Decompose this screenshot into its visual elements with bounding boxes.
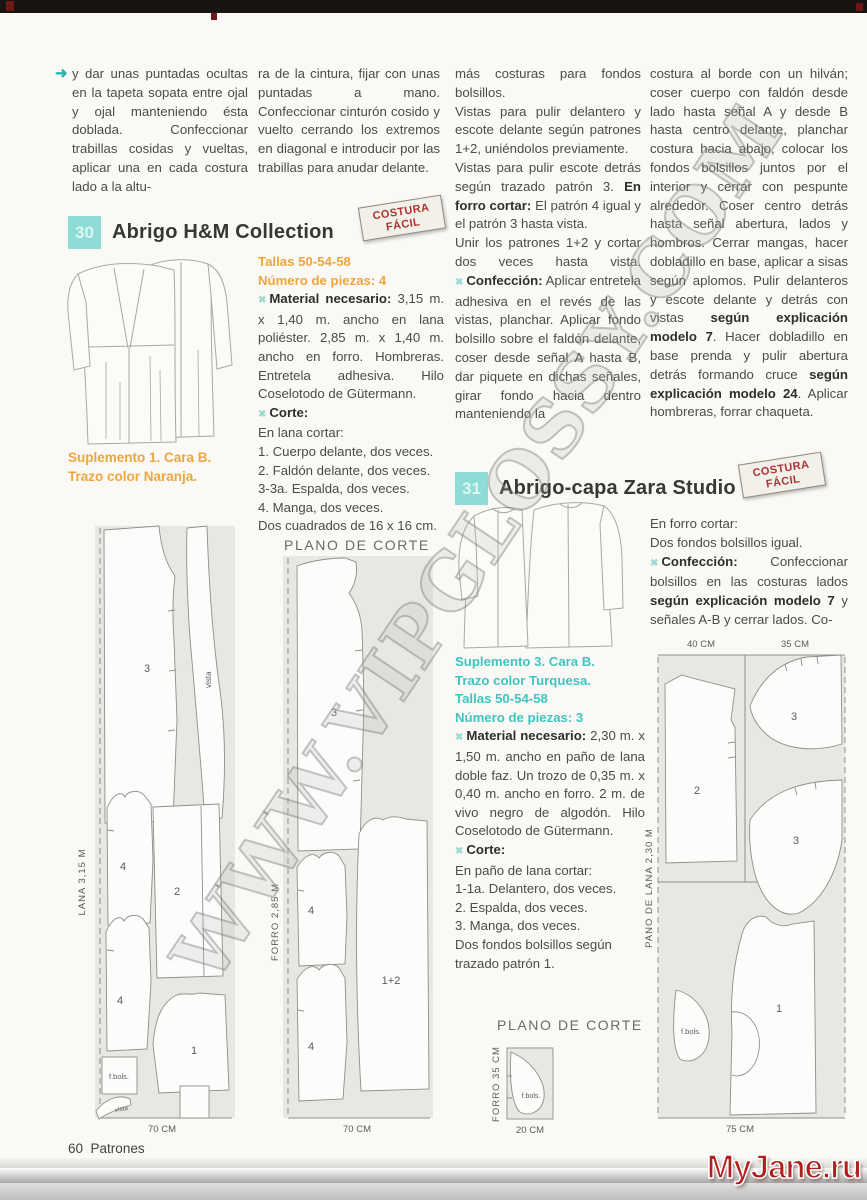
width-label: 20 CM (516, 1125, 544, 1136)
material-label: Material necesario: (269, 291, 391, 306)
piece-label: 3 (331, 707, 337, 719)
tallas-heading: Tallas 50-54-58 (258, 253, 444, 272)
piece-label: 1 (776, 1003, 782, 1015)
fabric-label: LANA 3,15 M (77, 849, 88, 916)
confeccion-label: Confección: (466, 273, 542, 288)
width-label: 70 CM (148, 1124, 176, 1135)
model31-info: Suplemento 3. Cara B. Trazo color Turque… (455, 653, 645, 973)
bold-ref: según explicación modelo 7 (650, 593, 835, 608)
piece-label: 2 (174, 886, 180, 898)
red-mark (211, 13, 217, 20)
width-label: 35 CM (781, 639, 809, 650)
subheading: En forro cortar: (650, 516, 738, 531)
piece-label: 3 (793, 835, 799, 847)
corte-intro: En paño de lana cortar: (455, 862, 645, 881)
myjane-logo: MyJane.ru (707, 1148, 861, 1186)
material-text: 2,30 m. x 1,50 m. ancho en paño de lana … (455, 728, 645, 838)
corte-label: Corte: (466, 842, 505, 857)
model30-title: Abrigo H&M Collection (112, 221, 334, 244)
intro-column-1: y dar unas puntadas ocultas en la tapeta… (72, 65, 248, 197)
model31-column-4: En forro cortar: Dos fondos bolsillos ig… (650, 515, 848, 630)
forro-panel: 3 4 1+2 4 70 CM FORRO 2,85 M (270, 556, 433, 1135)
model30-column-4: costura al borde con un hilván; coser cu… (650, 65, 848, 422)
scan-edge-strip (0, 0, 867, 13)
red-mark (6, 1, 14, 11)
model30-cutting-layout: 3 vista 4 2 4 f.bols. 1 vista 70 CM LANA… (60, 520, 445, 1140)
page-number: 60 (68, 1141, 83, 1156)
lana-panel: 3 vista 4 2 4 f.bols. 1 vista 70 CM LANA… (77, 526, 235, 1135)
paragraph: Dos fondos bolsillos igual. (650, 535, 802, 550)
paragraph: costura al borde con un hilván; coser cu… (650, 66, 848, 325)
bullet-icon: ✖ (258, 295, 269, 306)
model31-garment-sketch (452, 496, 644, 654)
piece-label: f.bols. (109, 1072, 129, 1081)
paragraph: Aplicar entretela adhesiva en el revés d… (455, 273, 641, 422)
magazine-name: Patrones (91, 1141, 145, 1156)
corte-label: Corte: (269, 405, 308, 420)
model30-garment-sketch (62, 250, 247, 450)
bullet-icon: ✖ (455, 277, 466, 288)
fabric-label: PAÑO DE LANA 2,30 M (645, 828, 655, 948)
plano-de-corte-heading-2: PLANO DE CORTE (497, 1017, 643, 1033)
piece-label: 1 (191, 1045, 197, 1057)
piece-label: 2 (694, 785, 700, 797)
piece-label: 1+2 (382, 975, 401, 987)
bullet-icon: ✖ (455, 846, 466, 857)
bullet-icon: ✖ (650, 558, 661, 569)
model30-number-badge: 30 (68, 216, 101, 249)
piece-label: 3 (144, 663, 150, 675)
width-label: 40 CM (687, 639, 715, 650)
suplemento3-note: Suplemento 3. Cara B. Trazo color Turque… (455, 653, 645, 727)
red-mark (856, 3, 863, 11)
material-label: Material necesario: (466, 728, 586, 743)
piece-label: 4 (308, 1041, 314, 1053)
costura-facil-stamp: COSTURA FÁCIL (358, 195, 446, 242)
paragraph: más costuras para fondos bolsillos. Vist… (455, 66, 641, 194)
suplemento1-note: Suplemento 1. Cara B. Trazo color Naranj… (68, 448, 258, 486)
piezas-heading: Número de piezas: 4 (258, 272, 444, 291)
piece-label: 4 (120, 861, 126, 873)
width-label: 75 CM (726, 1124, 754, 1135)
bullet-icon: ✖ (455, 732, 466, 743)
fabric-label: FORRO 35 CM (491, 1046, 502, 1122)
corte-items: 1-1a. Delantero, dos veces. 2. Espalda, … (455, 880, 645, 973)
fabric-label: FORRO 2,85 M (270, 883, 281, 961)
model30-column-3: más costuras para fondos bolsillos. Vist… (455, 65, 641, 424)
piece-label: f.bols. (522, 1093, 541, 1100)
material-text: 3,15 m. x 1,40 m. ancho en lana poliéste… (258, 291, 444, 401)
bullet-icon: ✖ (258, 409, 269, 420)
costura-facil-stamp: COSTURA FÁCIL (738, 452, 826, 499)
piece-label: 4 (117, 995, 123, 1007)
intro-column-2: ra de la cintura, fijar con unas puntada… (258, 65, 440, 178)
model31-forro-layout: f.bols. FORRO 35 CM 20 CM (480, 1036, 615, 1140)
model31-cutting-layout: 40 CM 35 CM 2 3 3 1 f.bols. 75 CM PAÑO D… (645, 632, 865, 1144)
width-label: 70 CM (343, 1124, 371, 1135)
corte-intro: En lana cortar: (258, 424, 444, 443)
confeccion-label: Confección: (661, 554, 737, 569)
piece-label: 4 (308, 905, 314, 917)
pano-panel: 40 CM 35 CM 2 3 3 1 f.bols. 75 CM PAÑO D… (645, 639, 845, 1135)
page-footer: 60 Patrones (68, 1141, 145, 1156)
arrow-icon: ➜ (55, 64, 68, 82)
piece-label: 3 (791, 711, 797, 723)
model30-info: Tallas 50-54-58 Número de piezas: 4 ✖Mat… (258, 253, 444, 536)
piece-label: f.bols. (681, 1027, 701, 1036)
magazine-page: ➜ y dar unas puntadas ocultas en la tape… (0, 0, 867, 1200)
piece-label: vista (204, 671, 213, 688)
